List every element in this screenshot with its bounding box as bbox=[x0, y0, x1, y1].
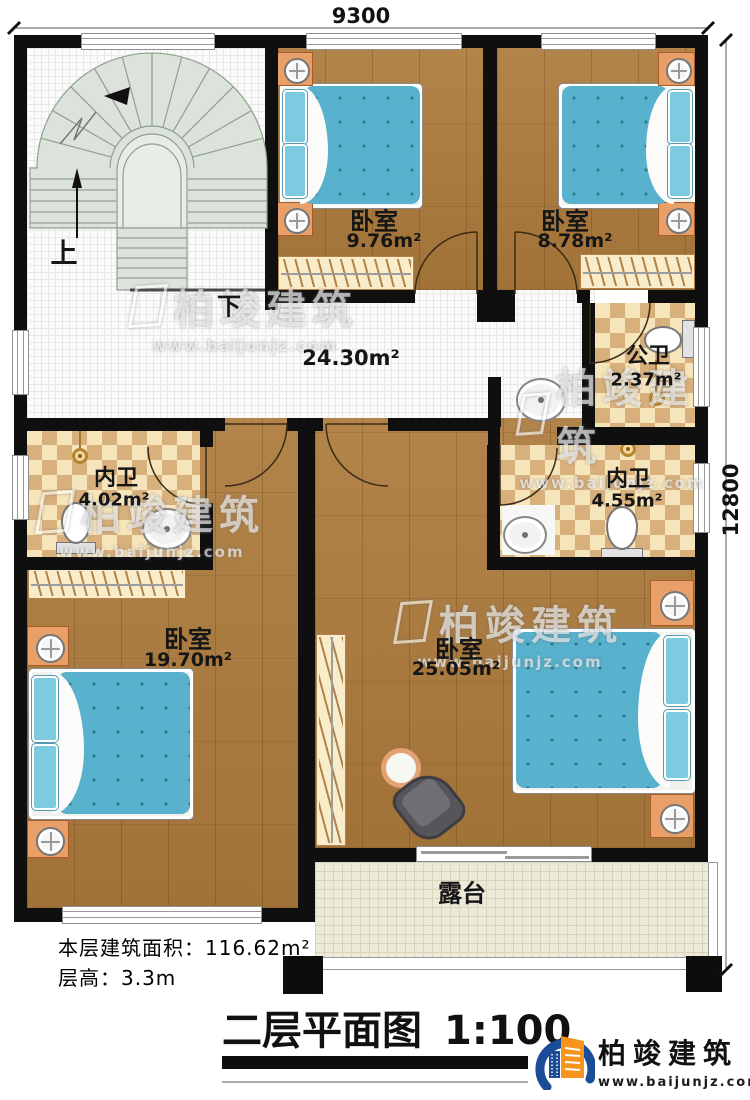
wall bbox=[265, 35, 278, 310]
wall bbox=[488, 427, 500, 445]
title-underline-thin bbox=[222, 1081, 528, 1083]
wall bbox=[577, 290, 590, 303]
bed-pillow bbox=[664, 636, 690, 706]
bed-pillow bbox=[32, 744, 58, 810]
room-area: 25.05m² bbox=[412, 658, 500, 680]
nightstand bbox=[277, 52, 313, 86]
wall bbox=[14, 418, 213, 431]
room-label-inner-bath: 内卫 bbox=[94, 460, 138, 492]
window bbox=[541, 33, 656, 50]
wall bbox=[695, 35, 708, 862]
wall bbox=[487, 445, 500, 557]
window bbox=[62, 906, 262, 924]
room-area: 9.76m² bbox=[347, 230, 422, 252]
wardrobe bbox=[28, 568, 186, 599]
terrace-rail-right bbox=[708, 862, 718, 970]
terrace-floor bbox=[315, 862, 708, 957]
room-area: 19.70m² bbox=[144, 649, 232, 671]
nightstand bbox=[27, 626, 69, 666]
floor-area-info: 本层建筑面积：116.62m² bbox=[58, 932, 310, 961]
floor-area-label: 本层建筑面积： bbox=[58, 936, 205, 960]
wall bbox=[200, 430, 213, 447]
sliding-door bbox=[416, 846, 592, 862]
wall bbox=[595, 427, 708, 445]
bed-pillow bbox=[668, 144, 692, 198]
room-label-terrace: 露台 bbox=[438, 874, 486, 909]
wall bbox=[200, 503, 213, 557]
plan-title: 二层平面图 bbox=[222, 998, 422, 1056]
bed-pillow bbox=[283, 144, 307, 198]
wall bbox=[557, 427, 595, 445]
pendant-cord bbox=[79, 428, 81, 450]
brand-name: 柏竣建筑 bbox=[598, 1032, 750, 1072]
window bbox=[12, 455, 29, 520]
room-area: 8.78m² bbox=[538, 230, 613, 252]
room-area: 4.55m² bbox=[591, 491, 662, 512]
wall bbox=[265, 290, 415, 303]
room-label-inner-bath: 内卫 bbox=[606, 461, 650, 493]
wall bbox=[14, 557, 213, 570]
plan-title-row: 二层平面图 1:100 bbox=[222, 998, 571, 1056]
wardrobe bbox=[278, 256, 414, 290]
wall bbox=[648, 290, 708, 303]
title-underline-bar bbox=[222, 1056, 528, 1069]
floor-height-value: 3.3m bbox=[121, 966, 176, 990]
bed-pillow bbox=[283, 90, 307, 144]
window bbox=[693, 327, 710, 407]
room-label-public-bath: 公卫 bbox=[626, 338, 670, 370]
terrace-pillar-left bbox=[283, 956, 323, 994]
terrace-pillar-right bbox=[686, 956, 722, 992]
wall bbox=[488, 377, 501, 427]
room-area-hallway: 24.30m² bbox=[302, 346, 400, 370]
nightstand bbox=[650, 794, 694, 838]
floor-height-label: 层高： bbox=[58, 966, 121, 990]
sink bbox=[142, 508, 192, 550]
floor-height-info: 层高：3.3m bbox=[58, 962, 176, 991]
nightstand bbox=[658, 52, 695, 86]
sink bbox=[503, 516, 547, 554]
window bbox=[693, 463, 710, 533]
dimension-top: 9300 bbox=[311, 4, 411, 28]
wall bbox=[213, 418, 225, 431]
floor-area-value: 116.62m² bbox=[205, 936, 310, 960]
room-area: 4.02m² bbox=[78, 490, 149, 511]
window bbox=[81, 33, 215, 50]
sink bbox=[516, 378, 566, 422]
nightstand bbox=[658, 202, 695, 236]
nightstand bbox=[650, 580, 694, 626]
nightstand bbox=[27, 820, 69, 858]
dimension-right: 12800 bbox=[719, 455, 743, 545]
stair-down-label: 下 bbox=[217, 287, 241, 322]
window bbox=[12, 330, 29, 395]
nightstand bbox=[277, 202, 313, 236]
brand-url: www.baijunjz.com bbox=[598, 1075, 750, 1090]
room-area: 2.37m² bbox=[610, 370, 681, 391]
wall bbox=[592, 848, 708, 862]
terrace-rail-bottom bbox=[311, 957, 718, 970]
wall bbox=[298, 848, 416, 862]
wardrobe bbox=[316, 634, 346, 846]
wall bbox=[298, 418, 315, 922]
wall bbox=[477, 290, 515, 322]
wall bbox=[388, 418, 488, 431]
pendant-light bbox=[649, 390, 665, 406]
pendant-light bbox=[72, 448, 88, 464]
wall bbox=[483, 35, 497, 292]
bed-pillow bbox=[32, 676, 58, 742]
brand-block: 柏竣建筑 www.baijunjz.com bbox=[598, 1032, 750, 1090]
wardrobe bbox=[580, 254, 695, 289]
wall bbox=[487, 557, 695, 570]
wall bbox=[582, 303, 595, 427]
bed-pillow bbox=[664, 710, 690, 780]
bed-pillow bbox=[668, 90, 692, 144]
floor-plan-page: 柏竣建筑 www.baijunjz.com 柏竣建筑 www.baijunjz.… bbox=[0, 0, 750, 1100]
brand-logo-icon bbox=[533, 1028, 595, 1090]
window bbox=[306, 33, 462, 50]
stair-up-label: 上 bbox=[51, 232, 78, 271]
